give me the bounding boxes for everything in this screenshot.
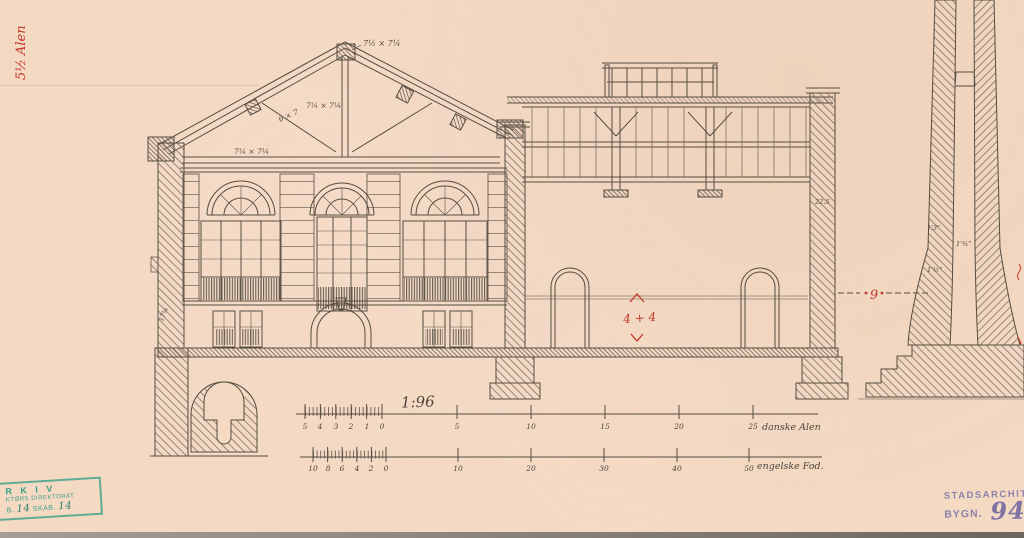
post-braces: [594, 112, 732, 136]
tick-label: 1: [365, 422, 370, 431]
tick-label: 4: [317, 422, 323, 431]
foundation-piers: [490, 357, 848, 399]
fanlight-center: [310, 183, 374, 215]
chimney-dim-top: 1'3": [927, 224, 940, 232]
chimney-section: 1'3" 1'¾" 1'½": [858, 0, 1024, 399]
parapet-cap: [806, 88, 840, 93]
scan-edge-shadow: [0, 532, 1024, 538]
purlin-block: [396, 86, 414, 104]
scale-ratio: 1:96: [401, 392, 436, 411]
cornice: [180, 168, 507, 172]
tick-label: 10: [453, 464, 463, 473]
party-wall-section: [505, 125, 525, 348]
tick-label: 10: [308, 464, 318, 473]
interior-datum-line: [525, 296, 808, 299]
red-dimension-mark: 4 + 4: [622, 294, 657, 341]
scale-bar-alen: 5 4 3 2 1 0 5 10 15 20 25 danske Alen: [296, 404, 821, 433]
red-edge-mark: [1018, 264, 1021, 280]
center-door: [317, 217, 367, 311]
ridge-block: [337, 44, 355, 60]
tick-label: 20: [673, 422, 684, 431]
basement-windows: [213, 311, 472, 347]
tick-label: 5: [455, 422, 460, 431]
chimney-dim-flue: 1'¾": [956, 240, 971, 248]
left-building-section: 7½ × 7¼ 7¼ × 7¼ 6 × 7 7¼ × 7¼: [148, 39, 523, 456]
tick-label: 6: [340, 464, 345, 473]
left-rafter: [158, 42, 345, 154]
fanlight-left: [207, 181, 275, 215]
tick-label: 3: [334, 422, 339, 431]
post-footing: [604, 190, 628, 197]
tick-label: 10: [526, 422, 536, 431]
red-dimension-text: 4 + 4: [622, 310, 657, 326]
tick-label: 25: [747, 422, 758, 431]
chimney-right-wall: [974, 0, 1020, 345]
right-wall-section: [810, 93, 835, 348]
king-post: [342, 56, 348, 157]
tick-label: 4: [354, 464, 360, 473]
roof-truss: 7½ × 7¼ 7¼ × 7¼ 6 × 7 7¼ × 7¼: [148, 39, 523, 163]
red-datum-number: 9: [870, 288, 878, 303]
wall-ledge: [151, 257, 158, 272]
floor-slab: [158, 348, 838, 357]
fanlight-right: [411, 181, 479, 215]
city-stamp-line2: BYGN. 94: [944, 499, 1024, 521]
small-window: [423, 311, 445, 347]
tick-label: 2: [368, 464, 374, 473]
archive-stamp-cabinet-label: SKAB.: [33, 504, 57, 512]
scale-bars: 1:96 5 4 3 2 1 0 5 10 15 20 25 danske Al…: [296, 392, 824, 473]
architectural-section-drawing: 7½ × 7¼ 7¼ × 7¼ 6 × 7 7¼ × 7¼: [0, 0, 1024, 538]
tick-label: 15: [600, 422, 610, 431]
tick-label: 30: [599, 464, 609, 473]
scale-unit-fod: engelske Fod.: [757, 461, 824, 472]
timber-dim-ridge: 7½ × 7¼: [363, 39, 400, 48]
foundation-wall: [155, 348, 188, 456]
small-window: [213, 311, 235, 347]
archive-stamp-shelf-label: B.: [6, 507, 14, 514]
tick-label: 40: [671, 464, 682, 473]
small-window: [240, 311, 262, 347]
scale-unit-alen: danske Alen: [762, 422, 821, 433]
large-window-left: [201, 221, 281, 301]
post-footing: [698, 190, 722, 197]
timber-dim-king-post: 7¼ × 7¼: [306, 101, 341, 110]
city-stamp-bygn-number: 94: [990, 496, 1024, 526]
fanlight-windows: [207, 181, 479, 215]
timber-dim-tie-beam: 7¼ × 7¼: [234, 147, 269, 156]
chimney-base: [866, 345, 1024, 397]
tick-label: 0: [384, 464, 389, 473]
arched-niche: [551, 268, 589, 348]
tick-label: 50: [744, 464, 754, 473]
timber-dim-strut: 6 × 7: [277, 107, 300, 124]
heavy-post: [706, 107, 714, 190]
tick-label: 8: [326, 464, 331, 473]
heavy-post: [612, 107, 620, 190]
small-window: [450, 311, 472, 347]
archive-stamp-shelf-number: 14: [16, 503, 30, 515]
scale-bar-fod: 10 8 6 4 2 0 10 20 30 40 50 engelske Fod…: [300, 447, 824, 473]
city-architect-stamp: STADSARCHITE BYGN. 94: [944, 487, 1024, 521]
tie-beam: [182, 157, 500, 163]
chimney-dim-mid: 1'½": [927, 266, 942, 274]
bottom-chord: [522, 177, 810, 182]
tick-label: 20: [525, 464, 536, 473]
tick-label: 0: [380, 422, 385, 431]
archive-stamp-cabinet-number: 14: [58, 500, 72, 512]
flue-joint: [955, 72, 975, 86]
mid-beam: [522, 142, 810, 147]
purlin-block: [245, 99, 261, 115]
right-rafter: [345, 42, 513, 139]
ceiling-joists: [522, 107, 810, 197]
wall-dim: 22.5: [814, 198, 829, 206]
tick-label: 2: [348, 422, 354, 431]
arched-niche: [741, 268, 779, 348]
city-stamp-bygn-label: BYGN.: [944, 508, 983, 521]
tick-label: 5: [303, 422, 308, 431]
large-window-right: [403, 221, 487, 301]
roof-lantern: [602, 63, 718, 97]
paper-crease: [0, 85, 260, 86]
roof-deck-fill: [507, 97, 833, 103]
